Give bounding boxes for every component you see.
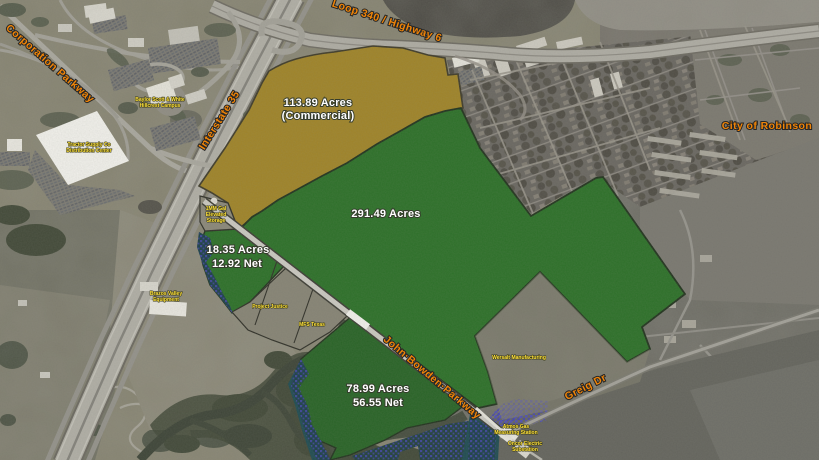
svg-text:Equipment: Equipment [153, 297, 179, 303]
svg-text:MFS Texas: MFS Texas [299, 322, 325, 328]
svg-text:12.92 Net: 12.92 Net [212, 258, 262, 270]
svg-text:Wersalt Manufacturing: Wersalt Manufacturing [492, 355, 546, 361]
svg-text:(Commercial): (Commercial) [282, 110, 355, 122]
svg-text:Storage: Storage [207, 218, 226, 224]
svg-text:Hillcrest Campus: Hillcrest Campus [140, 103, 181, 109]
svg-text:Project Justice: Project Justice [252, 304, 288, 310]
svg-text:113.89 Acres: 113.89 Acres [284, 97, 353, 109]
svg-text:Distribution Center: Distribution Center [66, 148, 111, 154]
svg-text:City of Robinson: City of Robinson [722, 120, 812, 132]
svg-text:78.99 Acres: 78.99 Acres [347, 383, 410, 395]
svg-text:18.35 Acres: 18.35 Acres [207, 244, 270, 256]
svg-text:56.55 Net: 56.55 Net [353, 397, 403, 409]
svg-text:Substation: Substation [512, 447, 538, 453]
svg-text:291.49 Acres: 291.49 Acres [351, 208, 420, 220]
svg-text:Measuring Station: Measuring Station [494, 430, 537, 436]
